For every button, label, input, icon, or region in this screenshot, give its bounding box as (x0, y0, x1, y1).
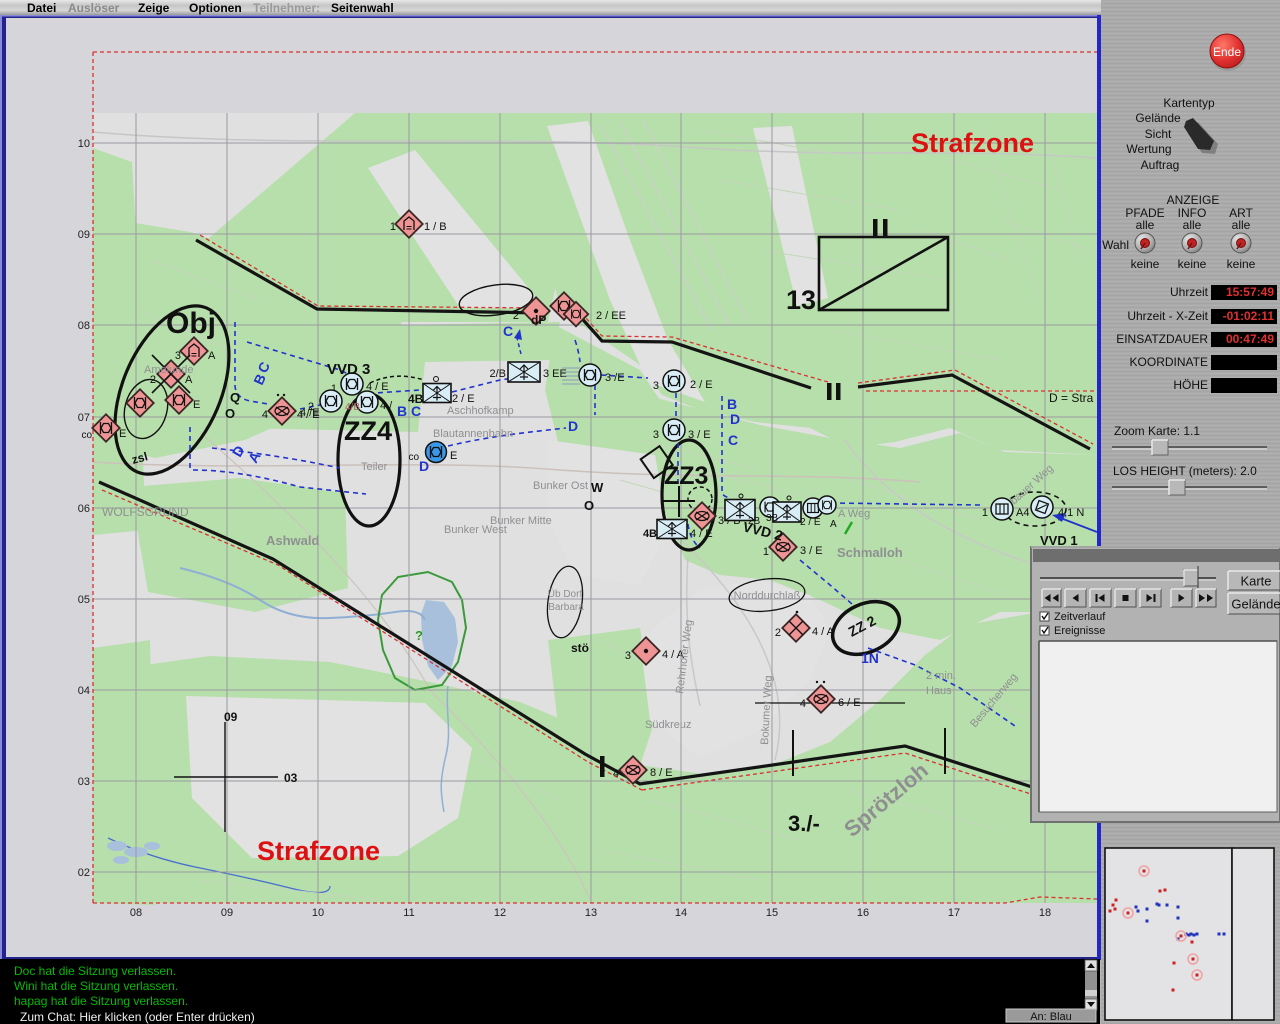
svg-text:04: 04 (78, 685, 90, 697)
svg-text:Amelunde: Amelunde (144, 364, 194, 376)
svg-text:C: C (503, 323, 513, 339)
svg-text:Gelände: Gelände (1135, 111, 1181, 125)
svg-text:07: 07 (78, 412, 90, 424)
svg-text:2: 2 (775, 627, 781, 639)
svg-text:Ashwald: Ashwald (266, 533, 320, 548)
svg-text:Barbara: Barbara (548, 602, 584, 613)
svg-text:15: 15 (766, 907, 778, 919)
svg-text:Südkreuz: Südkreuz (645, 719, 691, 731)
svg-text:03: 03 (284, 771, 298, 785)
svg-text:3 / E: 3 / E (800, 545, 823, 557)
svg-text:Uhrzeit: Uhrzeit (1170, 285, 1209, 299)
svg-text:Kartentyp: Kartentyp (1163, 96, 1215, 110)
svg-text:3: 3 (625, 650, 631, 662)
svg-text:Auslöser: Auslöser (68, 1, 120, 15)
svg-text:4 /: 4 / (380, 400, 393, 412)
svg-text:1: 1 (763, 546, 769, 558)
svg-text:Seitenwahl: Seitenwahl (331, 1, 394, 15)
svg-text:4B: 4B (408, 392, 424, 406)
svg-text:alle: alle (1183, 218, 1202, 232)
svg-text:3: 3 (175, 350, 181, 362)
svg-text:Norddurchlaß: Norddurchlaß (734, 590, 801, 602)
svg-text:1 / B: 1 / B (424, 221, 447, 233)
svg-text:3 /E: 3 /E (605, 372, 625, 384)
svg-text:alle: alle (1136, 218, 1155, 232)
svg-text:15:57:49: 15:57:49 (1226, 285, 1274, 299)
svg-text:11: 11 (403, 907, 414, 919)
svg-text:4: 4 (800, 698, 806, 710)
svg-text:A4: A4 (1016, 507, 1029, 519)
svg-text:4/B: 4/B (345, 402, 360, 413)
svg-text:D: D (568, 418, 578, 434)
svg-text:3./-: 3./- (788, 811, 820, 836)
svg-text:Auftrag: Auftrag (1141, 158, 1180, 172)
svg-text:A Weg: A Weg (838, 508, 870, 520)
svg-text:4 /E: 4 /E (300, 407, 320, 419)
svg-text:C: C (728, 432, 738, 448)
svg-text:B: B (397, 403, 407, 419)
svg-text:2: 2 (513, 310, 519, 322)
svg-text:Zeige: Zeige (138, 1, 170, 15)
svg-text:E: E (450, 450, 457, 462)
svg-text:4 / A: 4 / A (812, 626, 835, 638)
svg-text:Teiler: Teiler (361, 461, 388, 473)
svg-text:4 / E: 4 / E (690, 528, 713, 540)
svg-text:2 / E: 2 / E (690, 379, 713, 391)
svg-text:Aschhofkamp: Aschhofkamp (447, 405, 514, 417)
svg-text:HÖHE: HÖHE (1173, 378, 1208, 392)
svg-text:Gelände: Gelände (1231, 597, 1280, 612)
svg-text:4B: 4B (643, 528, 657, 540)
svg-text:VVD 3: VVD 3 (327, 361, 370, 378)
svg-text:Wahl: Wahl (1102, 238, 1129, 252)
svg-text:D: D (730, 411, 740, 427)
svg-text:Bunker Mitte: Bunker Mitte (490, 515, 552, 527)
svg-text:Sicht: Sicht (1145, 127, 1172, 141)
svg-text:W: W (591, 480, 604, 495)
svg-text:LOS HEIGHT (meters): 2.0: LOS HEIGHT (meters): 2.0 (1113, 464, 1257, 478)
svg-text:08: 08 (78, 320, 90, 332)
svg-text:09: 09 (221, 907, 233, 919)
svg-text:06: 06 (78, 503, 90, 515)
svg-text:B: B (727, 396, 737, 412)
svg-text:Datei: Datei (27, 1, 56, 15)
svg-text:3B: 3B (766, 513, 779, 524)
svg-text:Wini hat die Sitzung verlassen: Wini hat die Sitzung verlassen. (14, 979, 178, 993)
svg-text:Ende: Ende (1213, 45, 1241, 59)
svg-text:Strafzone: Strafzone (911, 128, 1034, 158)
svg-text:Q: Q (230, 390, 240, 405)
svg-text:ZZ3: ZZ3 (664, 462, 708, 490)
svg-text:3: 3 (653, 429, 659, 441)
svg-text:4: 4 (613, 768, 619, 780)
svg-text:ZZ4: ZZ4 (344, 416, 392, 446)
svg-text:KOORDINATE: KOORDINATE (1130, 355, 1208, 369)
svg-text:keine: keine (1227, 257, 1256, 271)
svg-text:E: E (119, 428, 126, 440)
svg-text:Teilnehmer:: Teilnehmer: (253, 1, 320, 15)
svg-text:Wertung: Wertung (1126, 142, 1171, 156)
svg-text:2 / E: 2 / E (800, 517, 821, 528)
svg-text:2/B: 2/B (489, 368, 506, 380)
svg-text:hapag hat die Sitzung verlasse: hapag hat die Sitzung verlassen. (14, 994, 188, 1008)
svg-text:Haus: Haus (926, 685, 952, 697)
svg-text:3 / E: 3 / E (688, 429, 711, 441)
svg-text:A: A (830, 519, 837, 530)
svg-text:-01:02:11: -01:02:11 (1223, 309, 1275, 323)
svg-text:Doc hat die Sitzung verlassen.: Doc hat die Sitzung verlassen. (14, 964, 176, 978)
svg-text:02: 02 (78, 867, 90, 879)
svg-text:2 / EE: 2 / EE (596, 310, 626, 322)
svg-text:Bunker Ost: Bunker Ost (533, 480, 588, 492)
svg-text:14: 14 (675, 907, 687, 919)
svg-text:A: A (208, 350, 216, 362)
svg-text:co: co (81, 430, 92, 441)
svg-text:Zoom Karte: 1.1: Zoom Karte: 1.1 (1114, 424, 1200, 438)
svg-text:17: 17 (948, 907, 960, 919)
svg-text:D = Stra: D = Stra (1049, 391, 1094, 405)
svg-text:co: co (408, 452, 419, 463)
svg-text:2 min.: 2 min. (926, 670, 956, 682)
svg-text:13: 13 (786, 285, 816, 315)
svg-text:13: 13 (585, 907, 597, 919)
svg-text:03: 03 (78, 776, 90, 788)
svg-text:1: 1 (982, 507, 988, 519)
svg-text:00:47:49: 00:47:49 (1226, 332, 1274, 346)
svg-text:10: 10 (312, 907, 324, 919)
svg-text:E: E (193, 399, 200, 411)
svg-text:Optionen: Optionen (189, 1, 242, 15)
svg-text:Zum Chat: Hier klicken (oder E: Zum Chat: Hier klicken (oder Enter drück… (20, 1010, 255, 1024)
svg-text:Zeitverlauf: Zeitverlauf (1054, 611, 1106, 623)
svg-text:2 / E: 2 / E (452, 393, 475, 405)
svg-text:ANZEIGE: ANZEIGE (1167, 193, 1220, 207)
svg-text:4,1 N: 4,1 N (1058, 507, 1084, 519)
svg-text:12: 12 (494, 907, 506, 919)
svg-text:An: Blau: An: Blau (1030, 1011, 1072, 1023)
svg-text:D: D (419, 458, 429, 474)
svg-text:?: ? (415, 628, 423, 643)
svg-text:1: 1 (390, 221, 396, 233)
svg-text:Schmalloh: Schmalloh (837, 545, 903, 560)
svg-text:10: 10 (78, 138, 90, 150)
svg-text:EINSATZDAUER: EINSATZDAUER (1116, 332, 1208, 346)
svg-text:O: O (584, 498, 594, 513)
svg-text:dP: dP (531, 313, 546, 327)
svg-text:6 / E: 6 / E (838, 697, 861, 709)
svg-text:Strafzone: Strafzone (257, 836, 380, 866)
svg-text:8 / E: 8 / E (650, 767, 673, 779)
svg-text:keine: keine (1131, 257, 1160, 271)
svg-text:09: 09 (224, 710, 238, 724)
svg-text:alle: alle (1232, 218, 1251, 232)
svg-text:Üb Dorf: Üb Dorf (548, 588, 583, 600)
svg-text:3 EE: 3 EE (543, 368, 567, 380)
svg-text:Obj: Obj (166, 307, 216, 340)
svg-text:08: 08 (130, 907, 142, 919)
svg-text:VVD 1: VVD 1 (1040, 533, 1078, 548)
svg-text:Blautannenbahn: Blautannenbahn (433, 428, 513, 440)
svg-text:3: 3 (653, 380, 659, 392)
svg-text:1N: 1N (861, 650, 879, 666)
svg-text:16: 16 (857, 907, 869, 919)
svg-text:Uhrzeit - X-Zeit: Uhrzeit - X-Zeit (1127, 309, 1208, 323)
svg-text:4: 4 (262, 409, 268, 421)
svg-text:O: O (225, 406, 235, 421)
svg-text:Ereignisse: Ereignisse (1054, 625, 1105, 637)
svg-text:Karte: Karte (1240, 574, 1271, 589)
svg-text:05: 05 (78, 594, 90, 606)
svg-text:09: 09 (78, 229, 90, 241)
svg-text:keine: keine (1178, 257, 1207, 271)
svg-text:stö: stö (571, 641, 589, 655)
svg-text:WOLFSGRUND: WOLFSGRUND (102, 505, 189, 519)
svg-text:18: 18 (1039, 907, 1051, 919)
